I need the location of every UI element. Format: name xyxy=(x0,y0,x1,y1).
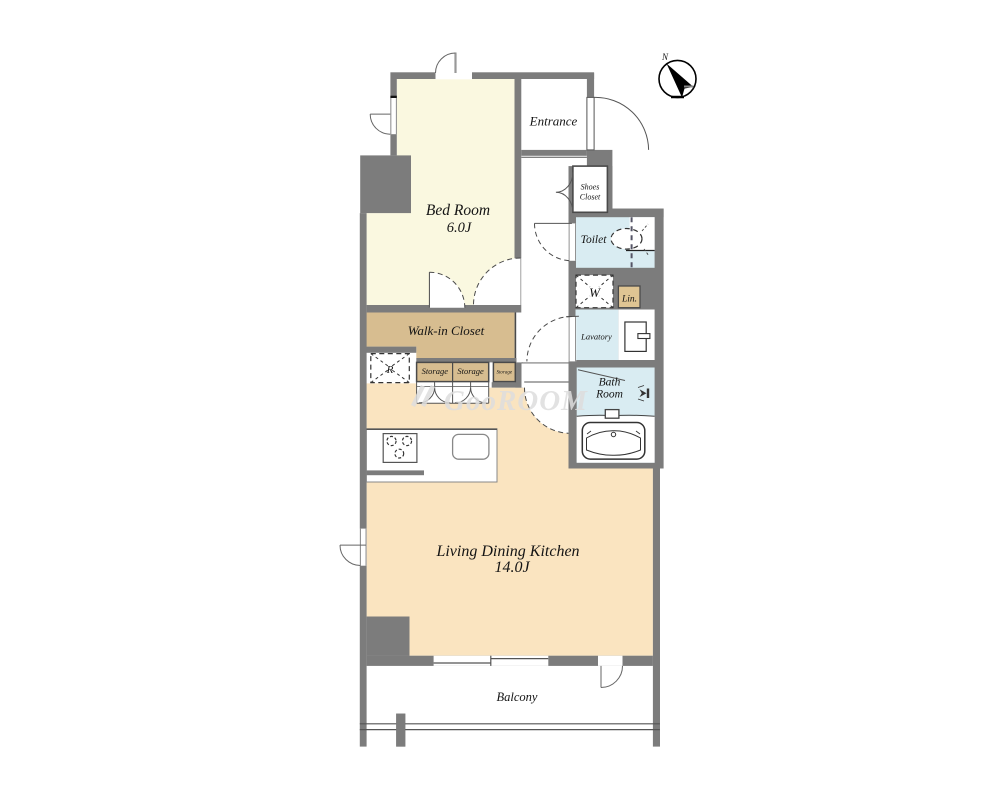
svg-text:Balcony: Balcony xyxy=(497,690,538,704)
svg-text:Room: Room xyxy=(595,389,623,401)
svg-text:W: W xyxy=(589,285,601,300)
svg-text:GooROOM: GooROOM xyxy=(444,385,588,417)
svg-text:Storage: Storage xyxy=(422,366,449,376)
svg-text:Bed Room: Bed Room xyxy=(426,202,490,219)
svg-text:Bath: Bath xyxy=(599,377,621,389)
svg-text:Entrance: Entrance xyxy=(529,114,578,129)
svg-text:Lin.: Lin. xyxy=(621,295,637,305)
svg-text:6.0J: 6.0J xyxy=(447,220,472,236)
svg-text:Storage: Storage xyxy=(497,371,513,376)
svg-text:14.0J: 14.0J xyxy=(494,559,530,576)
svg-text:Storage: Storage xyxy=(457,366,484,376)
svg-text:N: N xyxy=(661,52,669,62)
svg-text:Walk-in Closet: Walk-in Closet xyxy=(408,323,485,338)
svg-text:Toilet: Toilet xyxy=(581,234,608,246)
svg-text:Closet: Closet xyxy=(580,193,601,202)
svg-text:Living Dining Kitchen: Living Dining Kitchen xyxy=(435,543,579,560)
svg-text:R: R xyxy=(386,364,394,376)
svg-text:Shoes: Shoes xyxy=(581,183,600,192)
svg-text:Lavatory: Lavatory xyxy=(580,332,612,342)
